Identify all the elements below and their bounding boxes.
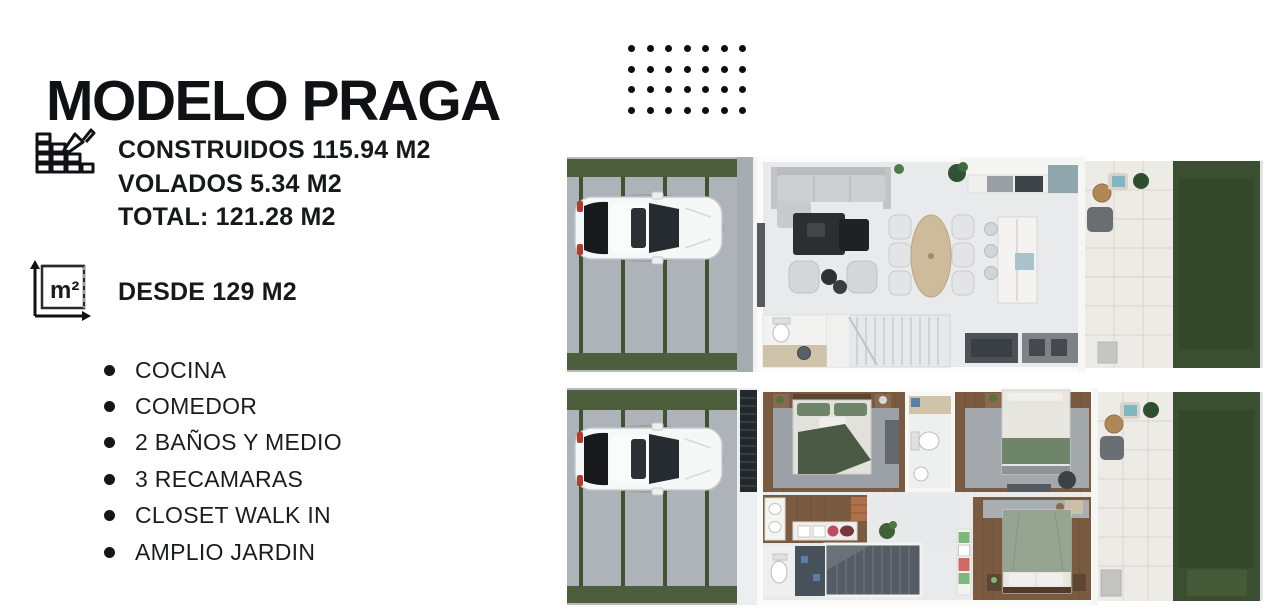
dot <box>628 45 635 52</box>
spec-line-volados: VOLADOS 5.34 M2 <box>118 168 431 202</box>
bullet-dot <box>104 437 115 448</box>
closet-shelf-strip <box>957 529 971 595</box>
feature-item: AMPLIO JARDIN <box>104 534 342 570</box>
half-bathroom <box>763 315 827 367</box>
dot <box>721 107 728 114</box>
spec-line-construidos: CONSTRUIDOS 115.94 M2 <box>118 134 431 168</box>
dining-room <box>889 215 974 297</box>
garden-lawn <box>1173 161 1263 368</box>
feature-label: COMEDOR <box>135 393 257 420</box>
bedroom-2 <box>955 390 1091 492</box>
house-ground-interior <box>757 157 1085 372</box>
upper-hallway <box>867 495 957 548</box>
feature-item: COMEDOR <box>104 388 342 424</box>
bedroom-1 <box>763 392 905 492</box>
feature-label: 2 BAÑOS Y MEDIO <box>135 429 342 456</box>
upper-floor-svg <box>567 388 1263 605</box>
page-title: MODELO PRAGA <box>46 68 500 134</box>
dot <box>647 107 654 114</box>
dot <box>665 107 672 114</box>
garden-lawn-2 <box>1173 392 1263 601</box>
patio-lounge-2 <box>1100 436 1124 460</box>
driveway-2 <box>567 388 737 605</box>
feature-item: 2 BAÑOS Y MEDIO <box>104 425 342 461</box>
planta-baja-render <box>567 157 1263 372</box>
staircase-upper <box>825 544 921 596</box>
feature-label: 3 RECAMARAS <box>135 466 303 493</box>
dot <box>628 107 635 114</box>
dot <box>739 107 746 114</box>
dot <box>684 45 691 52</box>
dot <box>702 107 709 114</box>
dot <box>665 86 672 93</box>
entry-walkway <box>737 157 759 372</box>
walkin-closet <box>763 495 867 543</box>
construction-specs: CONSTRUIDOS 115.94 M2 VOLADOS 5.34 M2 TO… <box>118 134 431 235</box>
spec-line-total: TOTAL: 121.28 M2 <box>118 201 431 235</box>
bullet-dot <box>104 401 115 412</box>
feature-item: CLOSET WALK IN <box>104 498 342 534</box>
patio-view <box>1091 388 1173 605</box>
bedroom-3 <box>973 497 1091 600</box>
feature-label: AMPLIO JARDIN <box>135 539 315 566</box>
dot <box>702 86 709 93</box>
bullet-dot <box>104 365 115 376</box>
dot <box>721 86 728 93</box>
feature-label: CLOSET WALK IN <box>135 502 331 529</box>
bricks-trowel-icon <box>33 126 97 190</box>
features-list: COCINACOMEDOR2 BAÑOS Y MEDIO3 RECAMARASC… <box>104 352 342 570</box>
dot-grid-decoration <box>628 45 746 114</box>
dot <box>665 45 672 52</box>
dot <box>739 45 746 52</box>
louver-screen <box>737 388 759 605</box>
bathroom-upper <box>905 392 955 492</box>
feature-item: 3 RECAMARAS <box>104 461 342 497</box>
lot-size-label: DESDE 129 M2 <box>118 278 297 307</box>
planta-alta-render <box>567 388 1263 605</box>
dot <box>702 66 709 73</box>
feature-item: COCINA <box>104 352 342 388</box>
patio-lounge <box>1087 207 1113 232</box>
patio-terrace <box>1078 157 1173 372</box>
dot <box>684 86 691 93</box>
dot <box>739 66 746 73</box>
staircase-ground <box>827 315 950 367</box>
dot <box>647 86 654 93</box>
feature-label: COCINA <box>135 357 226 384</box>
patio-table-2 <box>1105 415 1123 433</box>
bullet-dot <box>104 547 115 558</box>
m2-glyph: m² <box>50 277 79 304</box>
dot <box>739 86 746 93</box>
dot <box>684 107 691 114</box>
dot <box>628 66 635 73</box>
dot <box>721 45 728 52</box>
patio-plant <box>1133 173 1149 189</box>
ground-floor-svg <box>567 157 1263 372</box>
bullet-dot <box>104 474 115 485</box>
driveway <box>567 157 737 372</box>
square-meters-icon: m² <box>28 254 96 326</box>
bathroom-lower-left <box>763 546 825 596</box>
flyer-page: MODELO PRAGA CONSTRUIDOS 115.94 M2 VOLAD… <box>0 0 1281 614</box>
patio-plant-2 <box>1143 402 1159 418</box>
dot <box>665 66 672 73</box>
dot <box>684 66 691 73</box>
dot <box>721 66 728 73</box>
dot <box>628 86 635 93</box>
house-upper-interior <box>757 388 1097 605</box>
bullet-dot <box>104 510 115 521</box>
dot <box>702 45 709 52</box>
dot <box>647 66 654 73</box>
dot <box>647 45 654 52</box>
